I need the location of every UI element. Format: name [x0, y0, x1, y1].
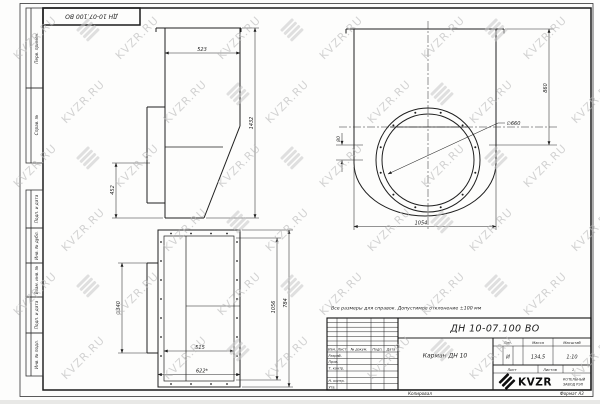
- dim-front-width: 1054: [415, 221, 428, 227]
- row-prov: Пров.: [329, 360, 339, 364]
- dim-front-offset: 80: [336, 136, 342, 142]
- scale-label: Масштаб: [563, 341, 581, 345]
- margin-label-podp-data-1: Подп. и дата: [34, 194, 39, 223]
- top-stamp-designation: ДН 10-07.100 ВО: [65, 13, 119, 20]
- col-podp: Подп.: [372, 347, 382, 351]
- dim-front-diameter: ∅660: [507, 121, 521, 127]
- col-list: Лист: [337, 347, 348, 351]
- title-designation: ДН 10-07.100 ВО: [449, 324, 539, 335]
- company-line2: ЗАВОД РЭП: [563, 383, 584, 387]
- scale-value: 1:10: [566, 355, 577, 361]
- margin-label-inv-podl: Инв. № подл.: [34, 340, 39, 369]
- mass-value: 134,5: [531, 355, 545, 361]
- row-razrab: Разраб.: [329, 354, 342, 358]
- dim-bottom-outer-height: 784: [283, 298, 289, 308]
- dim-side-flange: 452: [110, 185, 116, 195]
- sheets-label: Листов: [542, 368, 557, 372]
- sheet-label: Лист: [506, 368, 517, 372]
- col-doc: № докум.: [350, 347, 368, 351]
- logo-text: KVZR: [518, 377, 552, 389]
- row-n-kontr: Н. контр.: [329, 379, 345, 383]
- dim-bottom-inner-height: 1056: [271, 301, 277, 314]
- format-label: Формат А3: [560, 391, 584, 396]
- drawing-sheet: Перв. примен. Справ. № Подп. и дата Инв.…: [0, 0, 600, 400]
- row-t-kontr: Т. контр.: [329, 367, 345, 371]
- dim-bottom-outer-width: 622*: [196, 369, 209, 375]
- margin-label-podp-data-2: Подп. и дата: [34, 300, 39, 329]
- mass-label: Масса: [532, 341, 544, 345]
- dim-side-width: 523: [197, 47, 207, 53]
- margin-label-inv-dubl: Инв. № дубл.: [34, 231, 39, 260]
- dim-side-height: 1432: [249, 117, 255, 130]
- technical-drawing: Перв. примен. Справ. № Подп. и дата Инв.…: [0, 0, 600, 400]
- margin-label-sprav-no: Справ. №: [34, 114, 39, 135]
- col-izm: Изм.: [328, 347, 336, 351]
- drawing-note: Все размеры для справок. Допустимое откл…: [331, 306, 482, 312]
- copied-label: Копировал: [408, 391, 432, 396]
- dim-front-height: 860: [543, 83, 549, 93]
- row-utv: Утв.: [329, 386, 336, 390]
- lit-value: И: [506, 355, 510, 361]
